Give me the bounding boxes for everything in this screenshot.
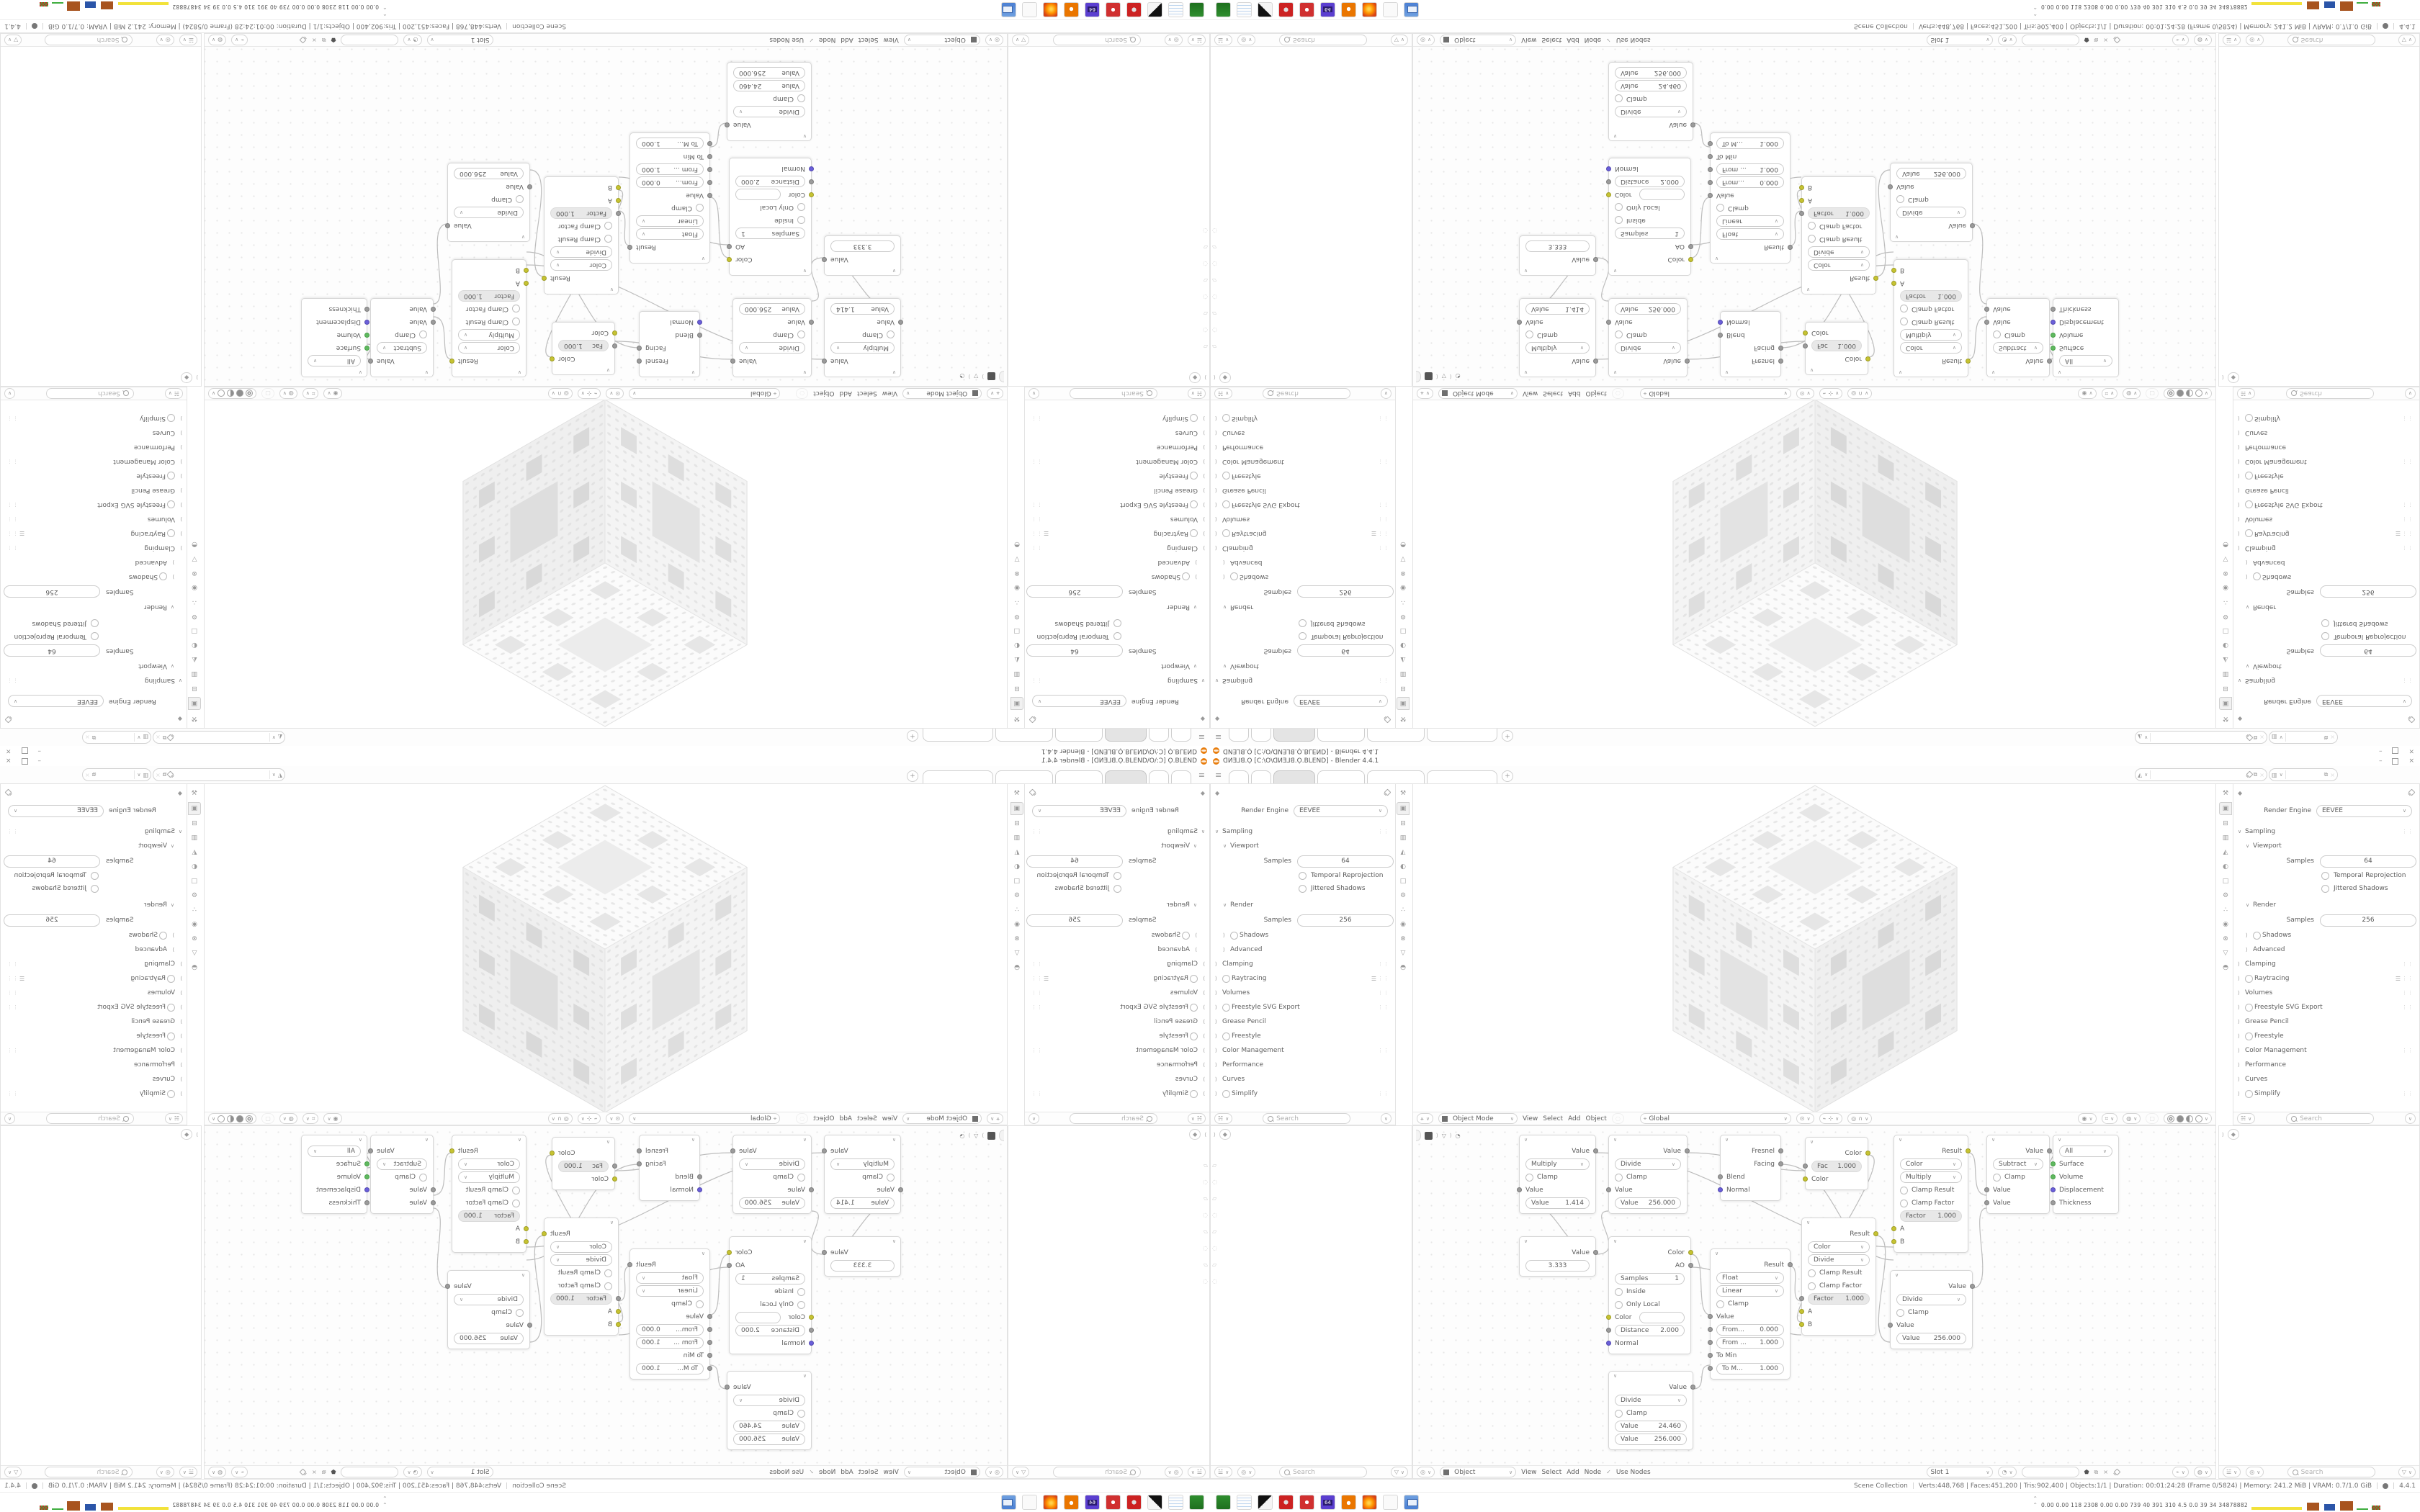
floppy64-icon[interactable]	[1320, 1495, 1335, 1510]
search-input[interactable]: Search	[1263, 388, 1350, 399]
snap-target-button[interactable]: ⊙∨	[1796, 388, 1814, 399]
panel-color-management[interactable]: ⟩Color Management⋮⋮	[1211, 1043, 1395, 1058]
view-layer-selector[interactable]: ▥∨ ⧉ ×	[2269, 768, 2338, 781]
view-layer-tab-icon[interactable]: ▥	[189, 668, 200, 680]
panel-freestyle-svg[interactable]: ⟩Freestyle SVG Export⋮⋮	[1211, 498, 1395, 512]
restore-button[interactable]	[22, 758, 28, 765]
panel-render[interactable]: ∨Render	[1025, 600, 1209, 614]
editor-type-button[interactable]: ☵∨	[2237, 388, 2255, 399]
checkbox[interactable]	[2245, 501, 2253, 509]
checkbox[interactable]	[91, 885, 99, 893]
editor-type-button[interactable]: ☵∨	[1188, 388, 1206, 399]
solid-shading-icon[interactable]	[236, 1115, 243, 1122]
panel-curves[interactable]: ⟩Curves	[1025, 1072, 1209, 1086]
node-value[interactable]: ∨ Value 3.333	[824, 235, 901, 276]
menu-view[interactable]: View	[884, 1469, 899, 1476]
node-value[interactable]: ∨ Value 3.333	[1519, 1236, 1596, 1277]
panel-advanced[interactable]: ⟩Advanced	[2233, 555, 2419, 570]
checkbox[interactable]	[2245, 530, 2253, 538]
material-name-field[interactable]	[341, 35, 398, 45]
side-tab-icon[interactable]: ▱	[1212, 244, 1217, 251]
filter-button[interactable]: ▽∨	[1012, 35, 1029, 45]
checkbox[interactable]	[2245, 415, 2253, 423]
collapsed-toolbar-icon[interactable]	[999, 371, 1004, 382]
new-view-layer-icon[interactable]: ⧉	[2324, 771, 2329, 778]
view-layer-name-field[interactable]	[98, 733, 135, 742]
panel-volumes[interactable]: ⟩Volumes⋮⋮	[1211, 986, 1395, 1000]
side-tab-icon[interactable]: ◌	[1212, 228, 1217, 234]
physics-tab-icon[interactable]: ◉	[189, 582, 200, 593]
material-tab-icon[interactable]: ◓	[1397, 962, 1409, 973]
node-layer-weight[interactable]: ∨ Fresnel Facing Blend Normal	[639, 311, 700, 377]
panel-performance[interactable]: ⟩Performance	[1025, 440, 1209, 454]
tool-settings-icon[interactable]: ◌	[1612, 1113, 1624, 1124]
node-math-subtract[interactable]: ∨ Value Subtract∨ Clamp Value Value	[1986, 298, 2050, 377]
panel-performance[interactable]: ⟩Performance	[2233, 440, 2419, 454]
color-swatch[interactable]	[735, 189, 781, 200]
checkbox[interactable]	[91, 620, 99, 628]
checkbox[interactable]	[1808, 1282, 1816, 1290]
viewport-samples-field[interactable]: 64	[4, 855, 100, 868]
node-math-divide-2[interactable]: ∨ Value Divide∨ Clamp Value Value256.000	[1890, 1270, 1973, 1349]
editor-type-button[interactable]: ◎∨	[985, 1467, 1003, 1477]
jittered-shadows-row[interactable]: Jittered Shadows	[1211, 882, 1395, 895]
workspace-tab[interactable]	[1427, 770, 1497, 783]
view-layer-tab-icon[interactable]: ▥	[1397, 668, 1409, 680]
search-input[interactable]: Search	[2286, 388, 2374, 399]
checkbox[interactable]	[1896, 196, 1904, 204]
rendered-shading-icon[interactable]	[2195, 390, 2202, 397]
viewport-samples-field[interactable]: 64	[1297, 645, 1394, 657]
snap-button[interactable]: ⌁∨	[2172, 1467, 2189, 1477]
constraints-tab-icon[interactable]: ⊗	[1397, 567, 1409, 579]
checkbox[interactable]	[1993, 1174, 2001, 1182]
pin-id-icon[interactable]	[1384, 790, 1389, 796]
particles-tab-icon[interactable]: ∴	[1011, 596, 1023, 608]
panel-grease-pencil[interactable]: ⟩Grease Pencil	[1025, 483, 1209, 498]
solid-shading-icon[interactable]	[2177, 1115, 2184, 1122]
checkbox[interactable]	[159, 573, 167, 581]
system-monitor-icon[interactable]	[1001, 1495, 1016, 1510]
search-input[interactable]: Search	[2287, 35, 2375, 45]
panel-sampling[interactable]: ∨Sampling⋮⋮	[1025, 673, 1209, 688]
shading-mode-switch[interactable]: ∨	[2164, 1113, 2212, 1124]
checkbox[interactable]	[1113, 885, 1121, 893]
close-button[interactable]: ×	[2408, 758, 2414, 765]
panel-clamping[interactable]: ⟩Clamping⋮⋮	[1, 957, 187, 971]
workspace-tab[interactable]	[923, 729, 993, 742]
expand-chevrons-icon[interactable]: ⌃⌃	[2033, 1495, 2038, 1508]
scene-tab-icon[interactable]: ◭	[189, 847, 200, 858]
panel-sampling[interactable]: ∨Sampling⋮⋮	[1, 824, 187, 839]
blank-app-icon[interactable]	[1022, 1495, 1037, 1510]
constraints-tab-icon[interactable]: ⊗	[2220, 567, 2231, 579]
blender-icon[interactable]	[1341, 1495, 1356, 1510]
use-nodes-label[interactable]: Use Nodes	[769, 1469, 804, 1476]
workspace-tab[interactable]	[1229, 770, 1249, 783]
material-name-field[interactable]	[341, 1467, 398, 1477]
view-layer-tab-icon[interactable]: ▥	[2220, 832, 2231, 844]
collapsed-toolbar-icon[interactable]	[1416, 371, 1421, 382]
data-tab-icon[interactable]: ▽	[1397, 948, 1409, 959]
temporal-reprojection-row[interactable]: Temporal Reprojection	[1, 869, 187, 882]
material-tab-icon[interactable]: ◓	[189, 962, 200, 973]
render-engine-dropdown[interactable]: EEVEE∨	[8, 805, 104, 817]
checkbox[interactable]	[1113, 633, 1121, 641]
panel-raytracing[interactable]: ⟩Raytracing☰⋮⋮	[1211, 971, 1395, 986]
transform-orientation-dropdown[interactable]: ⌖Global∨	[1640, 1113, 1791, 1124]
pin-icon[interactable]	[2246, 734, 2251, 740]
use-nodes-label[interactable]: Use Nodes	[769, 37, 804, 44]
fake-user-shield-icon[interactable]: ⬟	[2084, 1469, 2089, 1475]
checkbox[interactable]	[1222, 530, 1230, 538]
menu-list-icon[interactable]: ☰	[19, 531, 24, 537]
expand-icon[interactable]: ⟩	[1214, 1132, 1216, 1138]
physics-tab-icon[interactable]: ◉	[1011, 919, 1023, 930]
side-tab-icon[interactable]: ◌	[1212, 1278, 1217, 1284]
checkbox[interactable]	[1222, 975, 1230, 983]
output-tab-icon[interactable]: ⊟	[1011, 818, 1023, 829]
overlays-button[interactable]: ◍∨	[2123, 388, 2141, 399]
checkbox[interactable]	[1525, 331, 1533, 339]
search-input[interactable]: Search	[1263, 1113, 1350, 1124]
checkbox[interactable]	[1113, 620, 1121, 628]
material-tab-icon[interactable]: ◓	[2220, 539, 2231, 550]
side-tab-icon[interactable]: ◌	[1212, 1179, 1217, 1185]
panel-viewport[interactable]: ∨Viewport	[1025, 659, 1209, 673]
modifiers-tab-icon[interactable]: ⚙	[1397, 890, 1409, 901]
data-tab-icon[interactable]: ▽	[189, 553, 200, 564]
menu-node[interactable]: Node	[1585, 1469, 1602, 1476]
editor-type-button[interactable]: ☵∨	[165, 1113, 183, 1124]
workspace-tab[interactable]	[1251, 770, 1271, 783]
checkbox[interactable]	[1900, 305, 1908, 313]
node-value[interactable]: ∨ Value 3.333	[1519, 235, 1596, 276]
checkbox[interactable]	[419, 331, 427, 339]
panel-render[interactable]: ∨Render	[2233, 600, 2419, 614]
shader-node-editor[interactable]: ⟩▽ ⟩◔ ∨ Value Multiply∨ Clamp Value Valu…	[1412, 1125, 2216, 1479]
panel-volumes[interactable]: ⟩Volumes⋮⋮	[1025, 986, 1209, 1000]
panel-advanced[interactable]: ⟩Advanced	[1, 942, 187, 957]
node-invert-color[interactable]: ∨ Color Fac1.000 Color	[552, 322, 615, 375]
menu-list-icon[interactable]: ☰	[1371, 976, 1376, 982]
checkbox[interactable]	[604, 235, 612, 243]
material-name-field[interactable]	[2022, 35, 2079, 45]
scene-tab-icon[interactable]: ◭	[1397, 654, 1409, 665]
workspace-tab[interactable]	[1149, 729, 1169, 742]
gpu-utility-icon[interactable]	[1189, 1495, 1204, 1510]
view-layer-tab-icon[interactable]: ▥	[1011, 668, 1023, 680]
node-math-divide-3[interactable]: ∨ Value Divide∨ Clamp Value24.460 Value2…	[1608, 62, 1693, 141]
panel-curves[interactable]: ⟩Curves	[1211, 426, 1395, 440]
jittered-shadows-row[interactable]: Jittered Shadows	[1211, 617, 1395, 630]
node-math-divide-3[interactable]: ∨ Value Divide∨ Clamp Value24.460 Value2…	[727, 62, 812, 141]
node-material-output[interactable]: ∨ All∨ Surface Volume Displacement Thick…	[301, 298, 367, 377]
panel-raytracing[interactable]: ⟩Raytracing☰⋮⋮	[1025, 526, 1209, 541]
pin-icon[interactable]	[169, 772, 174, 778]
object-tab-icon[interactable]: □	[1397, 625, 1409, 636]
use-nodes-check-icon[interactable]: ✓	[809, 1469, 814, 1475]
proportional-edit-button[interactable]: ◎∩∨	[1847, 1113, 1872, 1124]
options-button[interactable]: ∨	[1028, 1113, 1039, 1124]
display-mode-button[interactable]: ◎∨	[156, 35, 174, 45]
menu-list-icon[interactable]: ☰	[1044, 531, 1049, 537]
pin-id-icon[interactable]	[6, 716, 12, 722]
menu-add[interactable]: Add	[840, 390, 852, 397]
menu-list-icon[interactable]: ☰	[1044, 976, 1049, 982]
unlink-material-icon[interactable]: ×	[312, 37, 317, 43]
shading-mode-switch[interactable]: ∨	[2164, 388, 2212, 399]
checkbox[interactable]	[1190, 472, 1198, 480]
viewport-samples-field[interactable]: 64	[1026, 855, 1123, 868]
side-tab-icon[interactable]: ▱	[1203, 244, 1208, 251]
menu-add[interactable]: Add	[1568, 1115, 1580, 1122]
checkbox[interactable]	[1615, 1301, 1623, 1309]
solid-shading-icon[interactable]	[236, 390, 243, 397]
menu-list-icon[interactable]: ☰	[2396, 976, 2401, 982]
checkbox[interactable]	[604, 1282, 612, 1290]
panel-render[interactable]: ∨Render	[2233, 898, 2419, 912]
checkbox[interactable]	[604, 1269, 612, 1277]
filter-button[interactable]: ▽∨	[4, 1467, 22, 1477]
viewport-samples-field[interactable]: 64	[2320, 645, 2416, 657]
side-tab-icon[interactable]: ▱	[1203, 310, 1208, 317]
checkbox[interactable]	[2245, 975, 2253, 983]
view-layer-tab-icon[interactable]: ▥	[2220, 668, 2231, 680]
node-layer-weight[interactable]: ∨ Fresnel Facing Blend Normal	[1720, 311, 1781, 377]
temporal-reprojection-row[interactable]: Temporal Reprojection	[1025, 869, 1209, 882]
checkbox[interactable]	[1222, 1004, 1230, 1012]
checkbox[interactable]	[1808, 1269, 1816, 1277]
panel-sampling[interactable]: ∨Sampling⋮⋮	[2233, 824, 2419, 839]
panel-freestyle[interactable]: ⟩Freestyle	[1, 469, 187, 483]
checkbox[interactable]	[1113, 872, 1121, 880]
expand-icon[interactable]: ⟩	[2222, 1132, 2224, 1138]
editor-type-button[interactable]: ☱∨	[2223, 35, 2241, 45]
checkbox[interactable]	[167, 1004, 175, 1012]
menu-add[interactable]: Add	[841, 37, 853, 44]
floppy64-icon[interactable]	[1085, 2, 1100, 17]
checkbox[interactable]	[1190, 1004, 1198, 1012]
gizmos-button[interactable]: ⌗∨	[2102, 1113, 2118, 1124]
restore-button[interactable]	[2392, 758, 2398, 765]
node-invert-color[interactable]: ∨ Color Fac1.000 Color	[552, 1137, 615, 1190]
side-tab-icon[interactable]: ◌	[1203, 261, 1208, 267]
viewport-samples-field[interactable]: 64	[1026, 645, 1123, 657]
panel-advanced[interactable]: ⟩Advanced	[1, 555, 187, 570]
options-button[interactable]: ∨	[1381, 388, 1391, 399]
node-invert-color[interactable]: ∨ Color Fac1.000 Color	[1805, 1137, 1868, 1190]
panel-simplify[interactable]: ⟩Simplify⋮⋮	[1, 1086, 187, 1101]
menu-view[interactable]: View	[882, 390, 897, 397]
minimize-button[interactable]: –	[2379, 758, 2383, 765]
expand-icon[interactable]: ⟩	[196, 375, 198, 381]
node-invert-color[interactable]: ∨ Color Fac1.000 Color	[1805, 322, 1868, 375]
world-tab-icon[interactable]: ◐	[2220, 639, 2231, 651]
browse-material-button[interactable]: ◔∨	[1998, 1467, 2016, 1477]
checkbox[interactable]	[797, 331, 805, 339]
temporal-reprojection-row[interactable]: Temporal Reprojection	[1211, 869, 1395, 882]
temporal-reprojection-row[interactable]: Temporal Reprojection	[2233, 869, 2419, 882]
display-mode-button[interactable]: ◎∨	[156, 1467, 174, 1477]
red-settings-icon[interactable]	[1106, 1495, 1121, 1510]
panel-freestyle-svg[interactable]: ⟩Freestyle SVG Export⋮⋮	[1025, 1000, 1209, 1014]
panel-curves[interactable]: ⟩Curves	[1, 1072, 187, 1086]
snap-magnet-button[interactable]: ⌁⊹∨	[578, 388, 601, 399]
editor-type-button[interactable]: ☵∨	[1188, 1113, 1206, 1124]
render-engine-dropdown[interactable]: EEVEE∨	[1294, 805, 1388, 817]
expand-icon[interactable]: ⟩	[2222, 375, 2224, 381]
panel-freestyle[interactable]: ⟩Freestyle	[1025, 469, 1209, 483]
snap-button[interactable]: ⌁∨	[231, 35, 248, 45]
blank-app-icon[interactable]	[1383, 1495, 1398, 1510]
menu-view[interactable]: View	[1523, 1115, 1538, 1122]
expand-icon[interactable]: ⟩	[1204, 375, 1206, 381]
slot-dropdown[interactable]: Slot 1∨	[1927, 35, 1993, 45]
snap-magnet-button[interactable]: ⌁⊹∨	[578, 1113, 601, 1124]
output-tab-icon[interactable]: ⊟	[1011, 683, 1023, 694]
restore-button[interactable]	[22, 748, 28, 755]
panel-curves[interactable]: ⟩Curves	[2233, 1072, 2419, 1086]
pin-icon[interactable]	[301, 1470, 307, 1475]
particles-tab-icon[interactable]: ∴	[1397, 904, 1409, 916]
panel-shadows[interactable]: ⟩Shadows	[1211, 928, 1395, 942]
shader-node-editor[interactable]: ⟩▽ ⟩◔ ∨ Value Multiply∨ Clamp Value Valu…	[1412, 33, 2216, 387]
workspace-tab-active[interactable]	[1105, 729, 1147, 742]
display-mode-button[interactable]: ◎∨	[2246, 35, 2264, 45]
search-input[interactable]: Search	[1070, 388, 1157, 399]
panel-grease-pencil[interactable]: ⟩Grease Pencil	[1211, 483, 1395, 498]
render-samples-field[interactable]: 256	[4, 586, 100, 598]
menu-hamburger-icon[interactable]: ≡	[1198, 770, 1205, 780]
new-material-icon[interactable]: ⧉	[322, 1469, 326, 1476]
node-ambient-occlusion[interactable]: ∨ Color AO Samples1 Inside Only Local Co…	[729, 1236, 812, 1354]
options-button[interactable]: ∨	[4, 1113, 15, 1124]
output-tab-icon[interactable]: ⊟	[1397, 683, 1409, 694]
panel-render[interactable]: ∨Render	[1, 898, 187, 912]
collapsed-toolbar-icon[interactable]	[1416, 1130, 1421, 1141]
side-tab-icon[interactable]: ▱	[1212, 310, 1217, 317]
pin-id-icon[interactable]	[2408, 790, 2414, 796]
panel-simplify[interactable]: ⟩Simplify⋮⋮	[1025, 1086, 1209, 1101]
checkbox[interactable]	[887, 331, 895, 339]
panel-render[interactable]: ∨Render	[1025, 898, 1209, 912]
panel-freestyle-svg[interactable]: ⟩Freestyle SVG Export⋮⋮	[2233, 1000, 2419, 1014]
snap-magnet-button[interactable]: ⌁⊹∨	[1819, 388, 1843, 399]
node-math-divide[interactable]: ∨ Value Divide∨ Clamp Value Value256.000	[732, 298, 812, 377]
editor-type-button[interactable]: ⚹∨	[987, 388, 1003, 399]
pin-icon[interactable]	[169, 734, 174, 740]
menu-add[interactable]: Add	[1567, 1469, 1579, 1476]
workspace-tab[interactable]	[1317, 770, 1365, 783]
checkbox[interactable]	[167, 530, 175, 538]
side-tab-icon[interactable]: ◌	[1212, 1245, 1217, 1251]
rendered-shading-icon[interactable]	[218, 390, 225, 397]
editor-type-button[interactable]: ⚹∨	[1417, 388, 1433, 399]
new-material-icon[interactable]: ⧉	[322, 37, 326, 44]
system-monitor-icon[interactable]	[1404, 1495, 1419, 1510]
pivot-point-button[interactable]: ◉∨	[323, 1113, 341, 1124]
panel-sampling[interactable]: ∨Sampling⋮⋮	[1025, 824, 1209, 839]
material-tab-icon[interactable]: ◓	[1011, 539, 1023, 550]
pivot-point-button[interactable]: ◉∨	[2078, 388, 2096, 399]
node-math-divide[interactable]: ∨ Value Divide∨ Clamp Value Value256.000	[1608, 1135, 1688, 1214]
unlink-material-icon[interactable]: ×	[2103, 37, 2108, 43]
filter-button[interactable]: ▽∨	[1391, 35, 1408, 45]
color-swatch[interactable]	[735, 1312, 781, 1323]
side-tab-icon[interactable]: ◌	[1203, 1278, 1208, 1284]
world-tab-icon[interactable]: ◐	[1011, 639, 1023, 651]
checkbox[interactable]	[1615, 1288, 1623, 1296]
gpu-utility-icon[interactable]	[1216, 1495, 1231, 1510]
side-tab-icon[interactable]: ▱	[1212, 1195, 1217, 1202]
expand-icon[interactable]: ⟩	[1214, 375, 1216, 381]
new-material-icon[interactable]: ⧉	[2094, 37, 2099, 44]
checkbox[interactable]	[1808, 235, 1816, 243]
tool-settings-icon[interactable]: ◌	[796, 388, 808, 399]
editor-type-button[interactable]: ☵∨	[1214, 388, 1232, 399]
node-math-multiply[interactable]: ∨ Value Multiply∨ Clamp Value Value1.414	[1519, 298, 1596, 377]
notepad-icon[interactable]	[1237, 2, 1252, 17]
checkbox[interactable]	[696, 1300, 704, 1308]
panel-grease-pencil[interactable]: ⟩Grease Pencil	[1025, 1014, 1209, 1029]
render-engine-dropdown[interactable]: EEVEE∨	[1032, 696, 1126, 708]
panel-sampling[interactable]: ∨Sampling⋮⋮	[1211, 673, 1395, 688]
menu-view[interactable]: View	[1521, 1469, 1536, 1476]
use-nodes-check-icon[interactable]: ✓	[1606, 37, 1611, 43]
xray-toggle[interactable]: ▢	[261, 388, 274, 399]
panel-color-management[interactable]: ⟩Color Management⋮⋮	[2233, 1043, 2419, 1058]
node-layer-weight[interactable]: ∨ Fresnel Facing Blend Normal	[1720, 1135, 1781, 1201]
panel-viewport[interactable]: ∨Viewport	[1025, 839, 1209, 853]
view-layer-name-field[interactable]	[2285, 733, 2322, 742]
color-swatch[interactable]	[1639, 1312, 1685, 1323]
node-layer-weight[interactable]: ∨ Fresnel Facing Blend Normal	[639, 1135, 700, 1201]
checkbox[interactable]	[512, 1187, 520, 1194]
panel-viewport[interactable]: ∨Viewport	[1, 659, 187, 673]
overlays-button[interactable]: ◍∨	[208, 35, 226, 45]
browse-material-button[interactable]: ◔∨	[403, 35, 421, 45]
scene-name-field[interactable]	[176, 770, 269, 779]
outliner-empty-left[interactable]: ⟩ ◆ ▱◌ ▱◌ ▱◌ ▱◌ ☱∨ ◎∨ Search ▽∨	[1210, 1125, 1412, 1479]
particles-tab-icon[interactable]: ∴	[189, 904, 200, 916]
wireframe-shading-icon[interactable]	[246, 1115, 253, 1122]
panel-viewport[interactable]: ∨Viewport	[1211, 839, 1395, 853]
checkbox[interactable]	[167, 415, 175, 423]
node-math-divide-2[interactable]: ∨ Value Divide∨ Clamp Value Value256.000	[1890, 163, 1973, 242]
viewport-3d[interactable]: ⚹∨ Object Mode∨ View Select Add Object ◌…	[204, 783, 1008, 1125]
checkbox[interactable]	[2245, 472, 2253, 480]
gizmos-button[interactable]: ⌗∨	[302, 388, 319, 399]
panel-simplify[interactable]: ⟩Simplify⋮⋮	[2233, 1086, 2419, 1101]
menu-list-icon[interactable]: ☰	[1371, 531, 1376, 537]
search-input[interactable]: Search	[45, 35, 133, 45]
node-ambient-occlusion[interactable]: ∨ Color AO Samples1 Inside Only Local Co…	[1608, 158, 1691, 276]
pin-icon[interactable]	[2246, 772, 2251, 778]
panel-volumes[interactable]: ⟩Volumes⋮⋮	[1211, 512, 1395, 526]
checkbox[interactable]	[1182, 932, 1190, 940]
firefox-icon[interactable]	[1362, 1495, 1377, 1510]
side-tab-icon[interactable]: ◌	[1203, 1245, 1208, 1251]
workspace-tab[interactable]	[1367, 729, 1425, 742]
editor-type-button[interactable]: ☵∨	[1214, 1113, 1232, 1124]
physics-tab-icon[interactable]: ◉	[189, 919, 200, 930]
view-layer-tab-icon[interactable]: ▥	[1011, 832, 1023, 844]
checkbox[interactable]	[512, 1200, 520, 1207]
close-button[interactable]: ×	[6, 748, 12, 755]
snap-target-button[interactable]: ⊙∨	[606, 1113, 624, 1124]
node-math-divide-2[interactable]: ∨ Value Divide∨ Clamp Value Value256.000	[447, 163, 530, 242]
